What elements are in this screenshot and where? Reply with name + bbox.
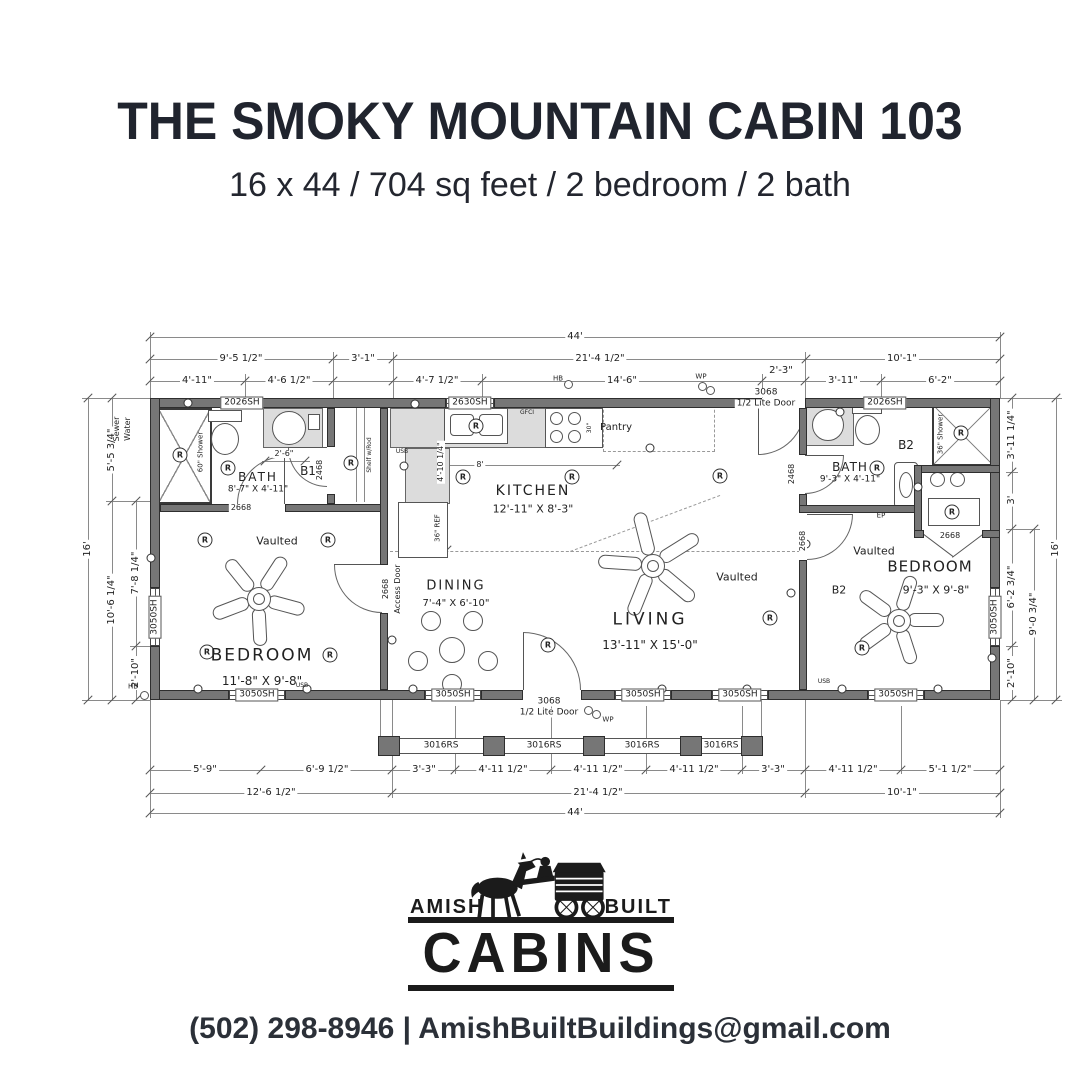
soap-dish-1 — [308, 414, 320, 430]
wall — [914, 465, 922, 535]
note-label: Pantry — [600, 423, 632, 433]
dim-label: 8' — [474, 461, 485, 469]
dim-label: 16' — [1051, 539, 1061, 558]
dimension-line — [82, 398, 150, 399]
dim-label: 21'-4 1/2" — [573, 354, 626, 364]
dim-label: 2'-10" — [1007, 656, 1017, 690]
recessed-light-icon: R — [954, 426, 969, 441]
amish-built-cabins-logo: AMISH BUILT CABINS — [408, 854, 674, 996]
railing-label: 3016RS — [527, 742, 562, 751]
sink-1 — [272, 411, 306, 445]
recessed-light-icon: R — [323, 648, 338, 663]
dim-label: 6'-2" — [926, 376, 954, 386]
logo-word-cabins: CABINS — [408, 920, 674, 985]
note-label: USB — [818, 679, 830, 685]
burner — [568, 430, 581, 443]
railing-label: 3016RS — [625, 742, 660, 751]
recessed-light-icon: R — [221, 461, 236, 476]
porch-post — [680, 736, 702, 756]
outlet-icon — [838, 685, 847, 694]
recessed-light-icon: R — [344, 456, 359, 471]
door-label: 2668 — [799, 529, 807, 553]
note-label: Vaulted — [716, 572, 758, 583]
recessed-light-icon: R — [763, 611, 778, 626]
dim-label: 3' — [1007, 493, 1017, 506]
wall — [768, 690, 868, 700]
wall — [671, 690, 712, 700]
outlet-icon — [388, 636, 397, 645]
wall — [327, 408, 335, 447]
outlet-icon — [409, 685, 418, 694]
railing-label: 3016RS — [424, 742, 459, 751]
hose-bib-icon — [140, 691, 149, 700]
porch-post — [378, 736, 400, 756]
room-size-label: 7'-4" X 6'-10" — [423, 599, 490, 609]
room-label: BEDROOM — [887, 560, 972, 575]
toilet-1-tank — [208, 410, 242, 422]
dim-label: 3'-11" — [826, 376, 860, 386]
dimension-line — [901, 706, 902, 774]
window-label: 3050SH — [621, 689, 664, 702]
dimension-line — [380, 700, 381, 738]
door-arc — [807, 514, 853, 560]
outlet-icon — [646, 444, 655, 453]
closet-shelf-line — [356, 402, 357, 502]
wall — [799, 560, 807, 690]
wall — [805, 398, 865, 408]
dim-label: 3'-1" — [349, 354, 377, 364]
note-label: WP — [602, 717, 613, 724]
dim-label: 4'-11 1/2" — [476, 765, 529, 775]
recessed-light-icon: R — [855, 641, 870, 656]
dim-label: 5'-1 1/2" — [927, 765, 974, 775]
room-size-label: 13'-11" X 15'-0" — [602, 639, 698, 651]
dim-label: 4'-11 1/2" — [667, 765, 720, 775]
wall — [327, 494, 335, 504]
wall — [150, 646, 160, 700]
window-label: 2630SH — [448, 397, 491, 410]
door-label: 2668 — [229, 504, 253, 512]
dimension-line — [1000, 332, 1001, 398]
wall — [160, 504, 237, 512]
railing-label: 3016RS — [704, 742, 739, 751]
wall — [914, 530, 924, 538]
window-label: 3050SH — [235, 689, 278, 702]
note-label: USB — [396, 449, 408, 455]
door-arc — [758, 408, 805, 455]
window-label: 3050SH — [989, 595, 1002, 638]
room-label: B2 — [832, 585, 847, 596]
dim-label: 3'-11 1/4" — [1007, 408, 1017, 461]
room-label: BATH — [832, 461, 868, 473]
dim-label: 3'-3" — [410, 765, 438, 775]
note-label: 36" Shower — [938, 414, 945, 454]
dim-label: 2'-3" — [767, 366, 795, 376]
outlet-icon — [194, 685, 203, 694]
porch-post — [483, 736, 505, 756]
dim-label: 12'-6 1/2" — [244, 788, 297, 798]
dining-table — [439, 637, 465, 663]
note-label: Shelf w/Rod — [367, 437, 373, 472]
dimension-line — [150, 700, 151, 818]
outlet-icon — [411, 400, 420, 409]
recessed-light-icon: R — [541, 638, 556, 653]
room-label: BEDROOM — [211, 648, 314, 665]
dim-label: 4'-11 1/2" — [826, 765, 879, 775]
recessed-light-icon: R — [173, 448, 188, 463]
outlet-icon — [934, 685, 943, 694]
room-label: DINING — [426, 580, 485, 593]
dim-label: 4'-11" — [180, 376, 214, 386]
outlet-icon — [914, 483, 923, 492]
dim-label: 4'-7 1/2" — [414, 376, 461, 386]
logo-word-amish: AMISH — [410, 896, 484, 919]
porch-post — [741, 736, 763, 756]
dim-label: 3'-3" — [759, 765, 787, 775]
window-label: 3050SH — [718, 689, 761, 702]
dim-label: 6'-9 1/2" — [304, 765, 351, 775]
door-label: 1/2 Lite Door — [735, 400, 797, 409]
recessed-light-icon: R — [945, 505, 960, 520]
window-label: 2026SH — [220, 397, 263, 410]
burner — [550, 412, 563, 425]
note-label: USB — [296, 683, 308, 689]
dim-label: 21'-4 1/2" — [571, 788, 624, 798]
dimension-line — [805, 700, 806, 798]
note-label: Water — [124, 417, 132, 441]
wall — [380, 408, 388, 565]
door-arc — [334, 565, 382, 613]
wall — [481, 690, 523, 700]
room-size-label: 12'-11" X 8'-3" — [493, 504, 574, 515]
burner — [550, 430, 563, 443]
dimension-line — [106, 501, 150, 502]
note-label: HB — [128, 684, 138, 691]
porch-post — [583, 736, 605, 756]
dining-chair — [408, 651, 428, 671]
closet-rod-hanger — [950, 472, 965, 487]
dining-chair — [478, 651, 498, 671]
dining-chair — [421, 611, 441, 631]
note-label: Vaulted — [256, 536, 298, 547]
page: THE SMOKY MOUNTAIN CABIN 103 16 x 44 / 7… — [0, 0, 1080, 1080]
toilet-1-bowl — [211, 423, 239, 455]
wall — [494, 398, 762, 408]
dim-label: 5'-9" — [191, 765, 219, 775]
window-label: 2026SH — [863, 397, 906, 410]
toilet-2-bowl — [855, 415, 880, 445]
dim-label: 10'-1" — [885, 354, 919, 364]
logo-word-built: BUILT — [605, 896, 672, 919]
closet-rod-hanger — [930, 472, 945, 487]
recessed-light-icon: R — [198, 533, 213, 548]
burner — [568, 412, 581, 425]
window-label: 3050SH — [874, 689, 917, 702]
room-size-label: 11'-8" X 9'-8" — [222, 675, 302, 687]
door-label: 1/2 Lite Door — [518, 709, 580, 718]
wp-outlet-icon — [706, 386, 715, 395]
door-label: Access Door — [394, 562, 402, 615]
wall — [799, 408, 807, 455]
dimension-line — [150, 332, 151, 398]
dim-label: 14'-6" — [605, 376, 639, 386]
note-label: 30" — [587, 423, 593, 433]
dim-label: 4'-6 1/2" — [266, 376, 313, 386]
door-label: 2468 — [788, 462, 796, 486]
note-label: Sewer — [113, 417, 121, 442]
door-label: 2468 — [316, 458, 324, 482]
ceiling-break-line — [390, 551, 800, 552]
wp-outlet-icon — [592, 710, 601, 719]
wall — [285, 504, 388, 512]
room-label: B2 — [898, 439, 914, 451]
door-label: 3068 — [753, 389, 780, 398]
outlet-icon — [184, 399, 193, 408]
window-label: 3050SH — [431, 689, 474, 702]
note-label: GFCI — [520, 410, 534, 416]
dim-label: 6'-2 3/4" — [1007, 564, 1017, 611]
wall — [990, 398, 1000, 588]
dim-label: 10'-1" — [885, 788, 919, 798]
recessed-light-icon: R — [469, 419, 484, 434]
note-label: HB — [553, 376, 563, 383]
outlet-icon — [787, 589, 796, 598]
dimension-line — [82, 700, 150, 701]
dim-label: 10'-6 1/4" — [107, 573, 117, 626]
dim-label: 7'-8 1/4" — [131, 550, 141, 597]
recessed-light-icon: R — [321, 533, 336, 548]
wall — [581, 690, 615, 700]
closet-shelf-line — [364, 402, 365, 502]
note-label: 60" Shower — [198, 432, 205, 472]
note-label: EP — [877, 513, 886, 520]
recessed-light-icon: R — [713, 469, 728, 484]
dimension-line — [761, 700, 762, 738]
dim-label: 44' — [565, 332, 584, 342]
outlet-icon — [988, 654, 997, 663]
dim-label: 4'-10 1/4" — [437, 440, 445, 483]
wall — [380, 613, 388, 690]
room-size-label: 9'-3" X 4'-11" — [820, 476, 880, 485]
outlet-icon — [400, 462, 409, 471]
room-label: B1 — [300, 465, 316, 477]
dim-label: 16' — [83, 539, 93, 558]
note-label: 36" REF — [435, 514, 442, 542]
note-label: Vaulted — [853, 546, 895, 557]
recessed-light-icon: R — [456, 470, 471, 485]
wall — [982, 530, 1000, 538]
dim-label: 9'-5 1/2" — [218, 354, 265, 364]
dim-label: 4'-11 1/2" — [571, 765, 624, 775]
wall — [920, 465, 1000, 473]
room-label: LIVING — [612, 612, 687, 629]
recessed-light-icon: R — [870, 461, 885, 476]
room-size-label: 9'-3" X 9'-8" — [903, 585, 970, 596]
hose-bib-icon — [564, 380, 573, 389]
wall — [150, 690, 229, 700]
dimension-line — [1000, 700, 1001, 818]
dining-chair — [463, 611, 483, 631]
outlet-icon — [836, 408, 845, 417]
dim-label: 2'-6" — [273, 450, 296, 458]
contact-info: (502) 298-8946 | AmishBuiltBuildings@gma… — [0, 1012, 1080, 1046]
dim-label: 9'-0 3/4" — [1029, 591, 1039, 638]
door-label: 3068 — [536, 698, 563, 707]
room-label: BATH — [238, 471, 278, 483]
logo-divider — [408, 985, 674, 991]
dim-label: 44' — [565, 808, 584, 818]
window-label: 3050SH — [149, 595, 162, 638]
wall — [799, 505, 920, 513]
room-size-label: 8'-7" X 4'-11" — [228, 486, 288, 495]
wall — [905, 398, 1000, 408]
outlet-icon — [147, 554, 156, 563]
linen-cabinet-oval — [899, 472, 913, 498]
note-label: WP — [695, 374, 706, 381]
room-label: KITCHEN — [496, 484, 571, 498]
door-label: 2668 — [938, 532, 962, 540]
door-label: 2668 — [382, 577, 390, 601]
